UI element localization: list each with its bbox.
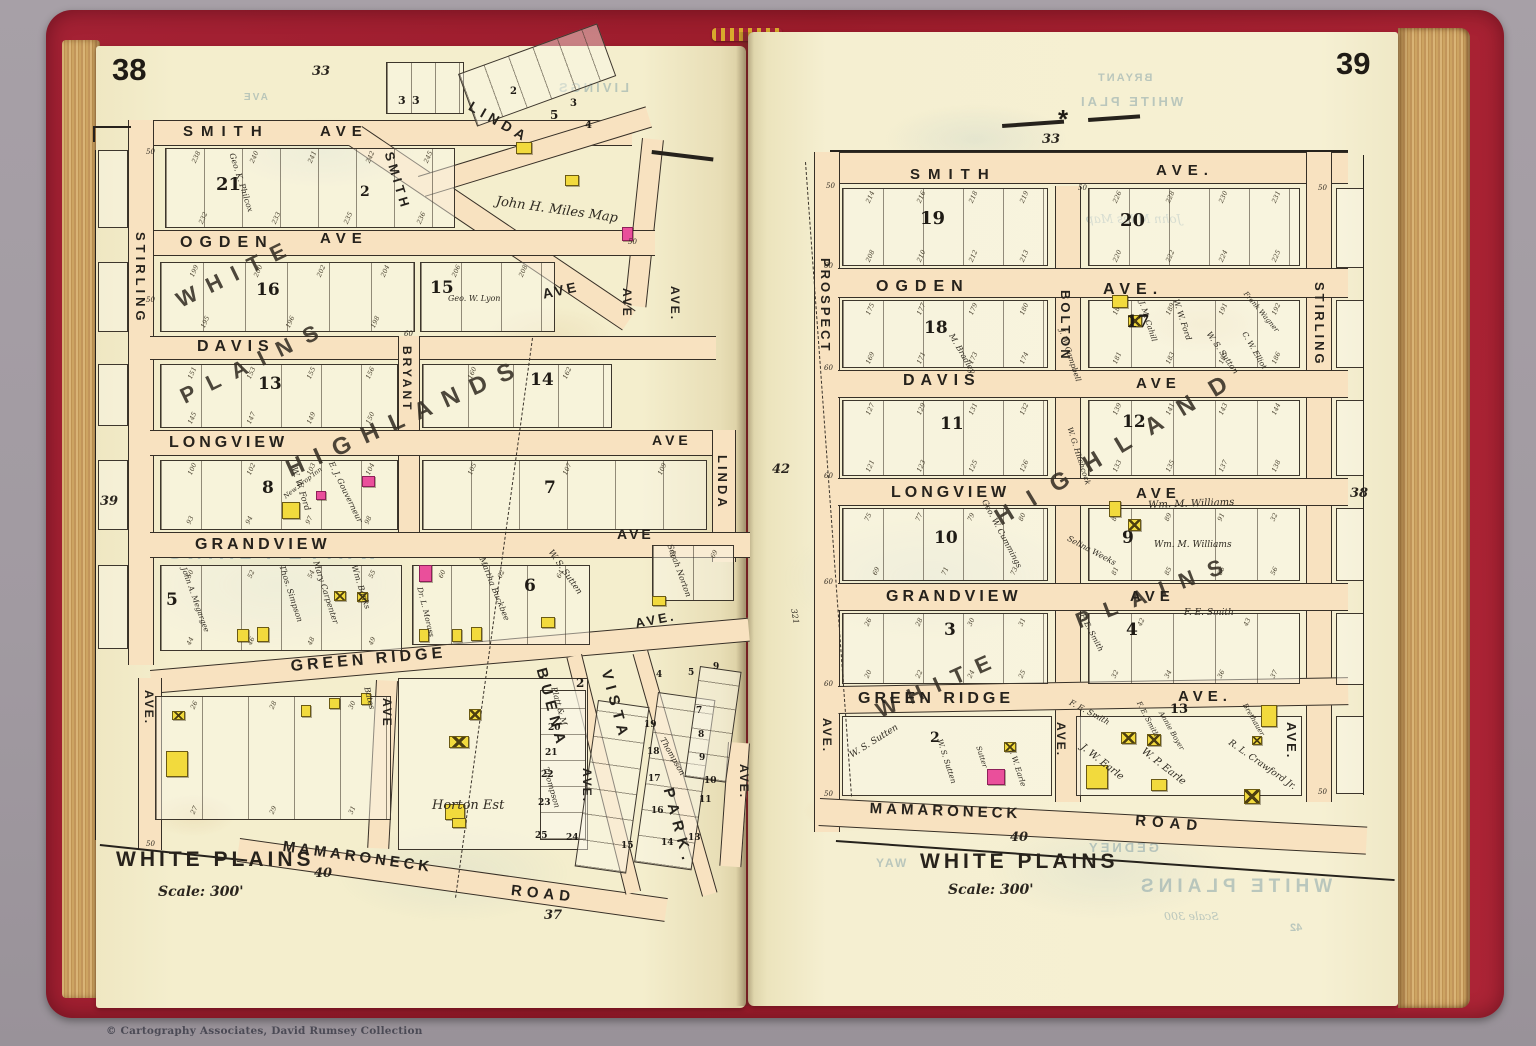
- owner-name: 50: [826, 182, 835, 190]
- lot-number: 107: [561, 462, 573, 477]
- building-footprint: [452, 818, 466, 828]
- lot-number: 235: [342, 211, 354, 226]
- street-label: GRANDVIEW: [886, 588, 1022, 606]
- lot-number: 60: [436, 569, 447, 580]
- lot-number: 26: [863, 617, 874, 628]
- lot-number: 69: [708, 549, 719, 560]
- lot-number: 236: [415, 211, 427, 226]
- city-block: 262830272931: [155, 696, 391, 820]
- lot-number: 129: [915, 402, 927, 417]
- building-footprint: [1109, 501, 1121, 517]
- block-number: 24: [566, 833, 579, 843]
- building-footprint: [166, 751, 188, 777]
- block-number: 13: [258, 374, 282, 394]
- city-block: 105107109: [422, 460, 707, 530]
- lot-number: 191: [1217, 302, 1229, 317]
- building-footprint: [316, 491, 326, 500]
- adjacent-sheet-ref: 33: [312, 64, 330, 79]
- lot-number: 28: [914, 617, 925, 628]
- lot-number: 155: [305, 366, 317, 381]
- lot-number: 44: [185, 636, 196, 647]
- lot-number: 206: [450, 264, 462, 279]
- lot-number: 79: [966, 512, 977, 523]
- lot-number: 43: [1242, 617, 1253, 628]
- lot-number: 28: [268, 700, 279, 711]
- adjacent-sheet-ref: 33: [1042, 132, 1060, 147]
- street-label: AVE: [1130, 588, 1175, 605]
- lot-number: 220: [1111, 249, 1123, 264]
- block-number: 2: [510, 86, 517, 97]
- bleed-through-text: Scale 300: [1164, 910, 1219, 923]
- street-label: GRANDVIEW: [195, 536, 331, 554]
- page-number-left: 38: [112, 52, 146, 88]
- street-label: SMITH: [910, 166, 997, 183]
- block-number: 3: [570, 98, 577, 109]
- map-line: [1088, 114, 1140, 121]
- lot-number: 204: [379, 264, 391, 279]
- street-label: LONGVIEW: [891, 484, 1010, 502]
- lot-number: 202: [315, 264, 327, 279]
- block-number: 13: [688, 833, 701, 843]
- block-number: 19: [644, 720, 657, 730]
- block-number: 18: [647, 747, 660, 757]
- lot-number: 89: [1162, 512, 1173, 523]
- owner-name: 50: [146, 840, 155, 848]
- block-number: 3: [944, 620, 956, 640]
- owner-name: 60: [824, 680, 833, 688]
- lot-number: 144: [1270, 402, 1282, 417]
- lot-number: 212: [967, 249, 979, 264]
- street-label: AVE: [1136, 375, 1181, 392]
- lot-number: 174: [1018, 351, 1030, 366]
- lot-number: 29: [268, 805, 279, 816]
- map-line: [93, 126, 95, 142]
- block-number: 11: [699, 795, 712, 805]
- lot-number: 31: [1017, 617, 1028, 628]
- city-block: [98, 262, 128, 332]
- block-number: 4: [656, 670, 662, 680]
- building-footprint: [449, 736, 469, 748]
- city-block: [1336, 508, 1364, 581]
- street-label: OGDEN: [180, 234, 274, 252]
- owner-name: Wm. M. Williams: [1154, 540, 1232, 550]
- block-number: 20: [548, 723, 561, 733]
- lot-number: 147: [245, 411, 257, 426]
- lot-number: 245: [422, 150, 434, 165]
- block-number: 2: [360, 184, 370, 200]
- block-number: 12: [1122, 412, 1146, 432]
- bleed-through-text: BRYANT: [1096, 72, 1152, 84]
- city-block: [98, 150, 128, 228]
- block-number: 10: [704, 776, 717, 786]
- lot-number: 224: [1217, 249, 1229, 264]
- street-label: AVE.: [1284, 722, 1299, 759]
- street-label: BRYANT: [400, 346, 414, 412]
- lot-number: 195: [199, 315, 211, 330]
- lot-number: 208: [517, 264, 529, 279]
- lot-number: 213: [1018, 249, 1030, 264]
- lot-number: 177: [915, 302, 927, 317]
- street-label: AVE.: [1103, 281, 1163, 299]
- owner-name: 60: [824, 364, 833, 372]
- building-footprint: [471, 627, 482, 641]
- adjacent-sheet-ref: 38: [1350, 486, 1368, 501]
- street-label: OGDEN: [876, 278, 970, 296]
- book: 38 39 33 39 40 37 33 42 38 40 WHITE PLAI…: [0, 0, 1536, 1046]
- owner-name: 321: [789, 608, 801, 625]
- building-footprint: [301, 705, 311, 717]
- lot-number: 71: [940, 566, 951, 577]
- map-line: [95, 150, 96, 840]
- block-number: 7: [696, 706, 702, 716]
- block-number: 5: [166, 590, 178, 610]
- lot-number: 171: [915, 351, 927, 366]
- lot-number: 192: [1270, 302, 1282, 317]
- adjacent-sheet-ref: 40: [1010, 830, 1028, 845]
- lot-number: 123: [915, 459, 927, 474]
- lot-number: 135: [1164, 459, 1176, 474]
- map-scale-left: Scale: 300': [158, 884, 243, 900]
- lot-number: 31: [346, 805, 357, 816]
- block-number: 8: [262, 478, 274, 498]
- lot-number: 34: [1162, 669, 1173, 680]
- lot-number: 180: [1018, 302, 1030, 317]
- street-label: AVE: [380, 698, 394, 728]
- building-footprint: [1244, 789, 1260, 804]
- block-number: 11: [940, 414, 964, 434]
- city-block: [1336, 300, 1364, 368]
- lot-number: 242: [364, 150, 376, 165]
- lot-number: 125: [967, 459, 979, 474]
- street-label: DAVIS: [197, 338, 275, 356]
- block-number: 8: [698, 730, 704, 740]
- building-footprint: [172, 711, 185, 720]
- block-number: 5: [550, 108, 558, 122]
- lot-number: 225: [1270, 249, 1282, 264]
- city-block: [1336, 188, 1364, 268]
- lot-number: 26: [189, 700, 200, 711]
- block-number: 2: [576, 676, 584, 690]
- lot-number: 75: [863, 512, 874, 523]
- lot-number: 137: [1217, 459, 1229, 474]
- block-number: 13: [1170, 702, 1188, 717]
- owner-name: 50: [1318, 184, 1327, 192]
- lot-number: 238: [190, 150, 202, 165]
- block-number: 25: [535, 831, 548, 841]
- street-label: AVE.: [142, 690, 156, 725]
- lot-number: 186: [1270, 351, 1282, 366]
- map-line: [1002, 120, 1064, 128]
- adjacent-sheet-ref: 40: [314, 866, 332, 881]
- owner-name: 50: [146, 148, 155, 156]
- lot-number: 100: [186, 462, 198, 477]
- city-block: 127129131132121123125126: [842, 400, 1048, 476]
- lot-number: 169: [864, 351, 876, 366]
- block-number: 3: [412, 94, 420, 107]
- lot-number: 94: [244, 515, 255, 526]
- block-number: 14: [661, 838, 674, 848]
- lot-number: 216: [915, 190, 927, 205]
- city-block: [1336, 400, 1364, 476]
- bleed-through-text: 42: [1290, 922, 1302, 934]
- block-number: 9: [699, 753, 705, 763]
- city-block: [1336, 716, 1364, 794]
- street-label: STIRLING: [1312, 282, 1327, 367]
- building-footprint: [1252, 736, 1262, 745]
- block-number: 14: [530, 370, 554, 390]
- city-block: 6869: [652, 545, 734, 601]
- lot-number: 27: [189, 805, 200, 816]
- lot-number: 143: [1217, 402, 1229, 417]
- block-number: 23: [538, 798, 551, 808]
- street-label: AVE.: [668, 286, 682, 321]
- adjacent-sheet-ref: 37: [544, 908, 562, 923]
- block-number: 4: [1126, 620, 1138, 640]
- lot-number: 49: [367, 636, 378, 647]
- lot-number: 219: [1018, 190, 1030, 205]
- lot-number: 175: [864, 302, 876, 317]
- lot-number: 97: [304, 515, 315, 526]
- owner-name: 50: [628, 238, 637, 246]
- bleed-through-text: WHITE PLAI: [1078, 94, 1183, 109]
- lot-number: 231: [1270, 190, 1282, 205]
- street-label: GREEN RIDGE: [858, 690, 1014, 708]
- lot-number: 32: [1268, 512, 1279, 523]
- street-label: PROSPECT: [818, 258, 833, 354]
- lot-number: 198: [369, 315, 381, 330]
- building-footprint: [1261, 705, 1277, 727]
- owner-name: Geo. W. Lyon: [448, 294, 500, 303]
- block-number: 19: [920, 208, 945, 229]
- block-number: 6: [524, 576, 536, 596]
- street-label: LINDA: [715, 455, 730, 510]
- lot-number: 30: [346, 700, 357, 711]
- city-block: 424332343637: [1088, 613, 1300, 684]
- lot-number: 162: [561, 366, 573, 381]
- lot-number: 241: [306, 150, 318, 165]
- block-number: 20: [1120, 210, 1145, 231]
- block-number: 17: [648, 774, 661, 784]
- building-footprint: [282, 502, 300, 519]
- street-label: AVE.: [1054, 722, 1068, 757]
- block-number: 9: [1122, 528, 1134, 548]
- lot-number: 20: [863, 669, 874, 680]
- owner-name: 60: [824, 262, 833, 270]
- building-footprint: [1121, 732, 1136, 744]
- adjacent-sheet-ref: 39: [100, 494, 118, 509]
- lot-number: 104: [364, 462, 376, 477]
- block-number: 4: [585, 120, 592, 131]
- lot-number: 210: [915, 249, 927, 264]
- city-block: [98, 565, 128, 649]
- lot-number: 48: [306, 636, 317, 647]
- block-number: 10: [934, 528, 958, 548]
- building-footprint: [237, 629, 249, 642]
- block-number: 5: [688, 668, 694, 678]
- city-block: [98, 364, 128, 426]
- street-band: [128, 120, 154, 665]
- owner-name: F. E. Smith: [1184, 608, 1234, 618]
- lot-number: 52: [246, 569, 257, 580]
- owner-name: 50: [146, 296, 155, 304]
- street-label: AVE: [620, 288, 634, 318]
- building-footprint: [257, 627, 269, 642]
- lot-number: 93: [185, 515, 196, 526]
- lot-number: 149: [305, 411, 317, 426]
- lot-number: 183: [1164, 351, 1176, 366]
- city-block: 238240241242245232233235236: [165, 148, 455, 228]
- lot-number: 36: [1215, 669, 1226, 680]
- copyright-note: © Cartography Associates, David Rumsey C…: [106, 1025, 423, 1037]
- lot-number: 240: [248, 150, 260, 165]
- map-title-right: WHITE PLAINS: [920, 850, 1119, 874]
- block-number: 7: [544, 478, 556, 498]
- north-arrow-star: *: [1058, 104, 1068, 135]
- bleed-through-text: WAY: [874, 856, 906, 870]
- lot-number: 121: [864, 459, 876, 474]
- building-footprint: [1151, 779, 1167, 791]
- lot-number: 77: [914, 512, 925, 523]
- map-line: [830, 150, 1348, 152]
- lot-number: 69: [871, 566, 882, 577]
- city-block: [1336, 613, 1364, 685]
- building-footprint: [565, 175, 579, 186]
- lot-number: 222: [1164, 249, 1176, 264]
- building-footprint: [469, 709, 481, 720]
- map-line: [95, 126, 131, 128]
- owner-name: Horton Est: [432, 798, 504, 813]
- street-label: LONGVIEW: [169, 434, 288, 452]
- street-band: [624, 138, 663, 307]
- block-number: 9: [713, 662, 719, 672]
- owner-name: John H. Miles Map: [495, 194, 619, 226]
- bleed-through-text: WHITE PLAINS: [1136, 876, 1332, 898]
- lot-number: 32: [1109, 669, 1120, 680]
- street-label: SMITH: [183, 123, 270, 140]
- lot-number: 145: [186, 411, 198, 426]
- map-scale-right: Scale: 300': [948, 882, 1033, 898]
- block-number: 16: [256, 280, 280, 300]
- city-block: 187189191192181183185186: [1088, 300, 1300, 368]
- lot-number: 91: [1215, 512, 1226, 523]
- owner-name: 50: [824, 790, 833, 798]
- lot-number: 214: [864, 190, 876, 205]
- owner-name: 50: [1318, 788, 1327, 796]
- building-footprint: [362, 476, 375, 487]
- building-footprint: [652, 596, 666, 606]
- building-footprint: [452, 629, 462, 642]
- block-number: 21: [545, 748, 558, 758]
- lot-number: 181: [1111, 351, 1123, 366]
- lot-number: 56: [1268, 566, 1279, 577]
- lot-number: 179: [967, 302, 979, 317]
- street-label: AVE: [320, 123, 368, 140]
- building-footprint: [541, 617, 555, 628]
- building-footprint: [334, 591, 346, 601]
- lot-number: 228: [1164, 190, 1176, 205]
- block-number: 15: [621, 841, 634, 851]
- street-label: AVE.: [1156, 162, 1214, 179]
- map-line: [1363, 155, 1364, 795]
- lot-number: 25: [1017, 669, 1028, 680]
- lot-number: 37: [1268, 669, 1279, 680]
- lot-number: 109: [656, 462, 668, 477]
- lot-number: 230: [1217, 190, 1229, 205]
- street-label: STIRLING: [133, 232, 148, 325]
- street-label: AVE: [320, 230, 368, 247]
- block-number: 16: [651, 806, 664, 816]
- lot-number: 105: [466, 462, 478, 477]
- page-number-right: 39: [1336, 46, 1370, 82]
- block-number: 18: [924, 318, 948, 338]
- street-label: AVE.: [737, 764, 751, 799]
- lot-number: 232: [197, 211, 209, 226]
- lot-number: 30: [966, 617, 977, 628]
- lot-number: 226: [1111, 190, 1123, 205]
- lot-number: 55: [367, 569, 378, 580]
- owner-name: 60: [824, 472, 833, 480]
- building-footprint: [987, 769, 1005, 785]
- map-stage: 38 39 33 39 40 37 33 42 38 40 WHITE PLAI…: [0, 0, 1536, 1046]
- street-label: AVE.: [580, 768, 594, 803]
- lot-number: 81: [1109, 566, 1120, 577]
- owner-name: 60: [824, 578, 833, 586]
- building-footprint: [329, 698, 340, 709]
- map-title-left: WHITE PLAINS: [116, 848, 315, 872]
- adjacent-sheet-ref: 42: [772, 462, 790, 477]
- bleed-through-text: AVE: [242, 92, 268, 103]
- lot-number: 138: [1270, 459, 1282, 474]
- lot-number: 156: [364, 366, 376, 381]
- lot-number: 218: [967, 190, 979, 205]
- building-footprint: [419, 565, 432, 582]
- owner-name: 60: [404, 330, 413, 338]
- lot-number: 126: [1018, 459, 1030, 474]
- lot-number: 62: [496, 569, 507, 580]
- city-block: [1076, 716, 1302, 796]
- lot-number: 132: [1018, 402, 1030, 417]
- lot-number: 127: [864, 402, 876, 417]
- street-label: AVE.: [820, 718, 834, 753]
- block-number: 3: [398, 94, 406, 107]
- lot-number: 131: [967, 402, 979, 417]
- lot-number: 233: [270, 211, 282, 226]
- street-label: AVE: [652, 432, 692, 448]
- lot-number: 102: [245, 462, 257, 477]
- owner-name: 50: [1078, 184, 1087, 192]
- lot-number: 208: [864, 249, 876, 264]
- street-label: AVE: [617, 526, 654, 542]
